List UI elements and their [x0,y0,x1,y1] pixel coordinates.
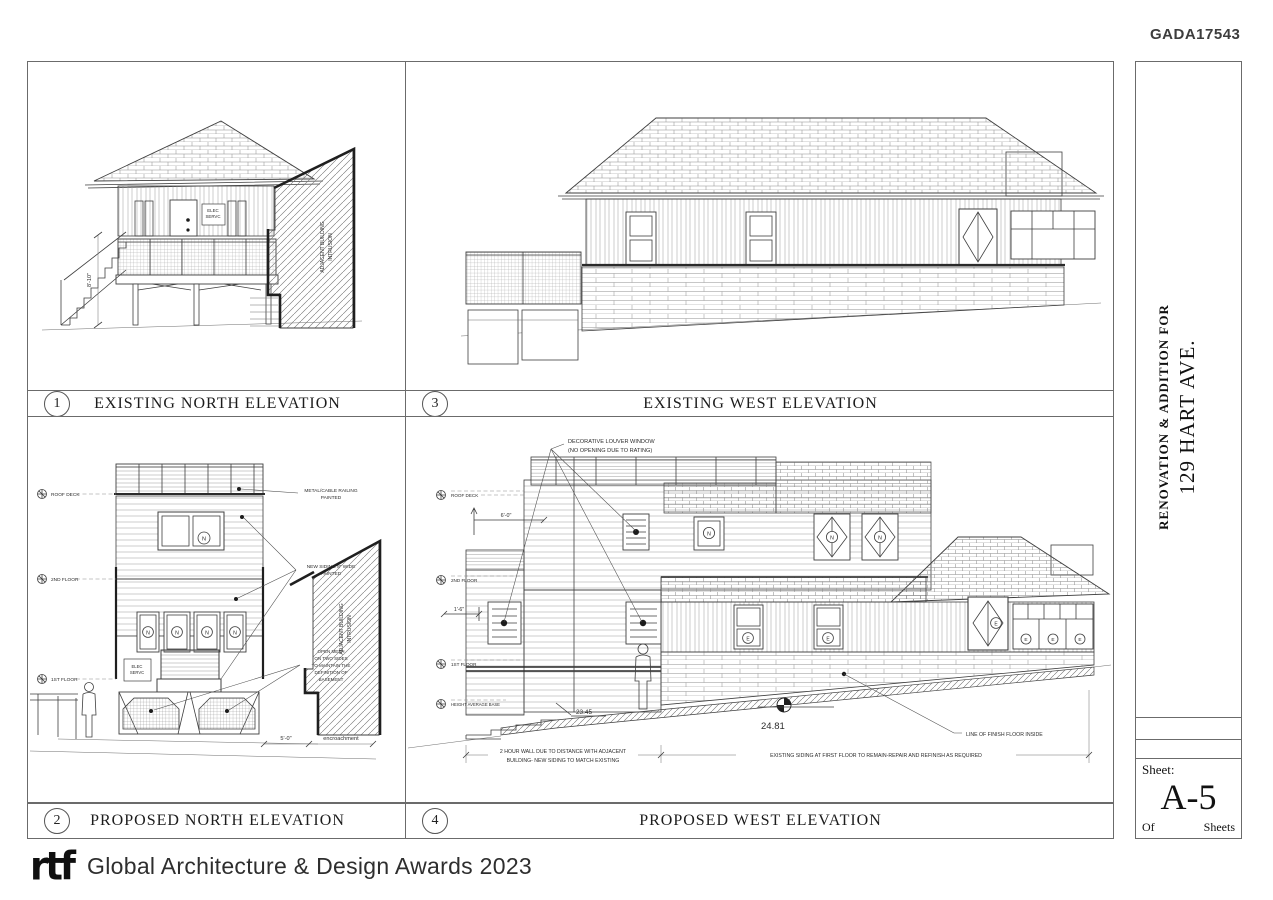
svg-text:(NO OPENING DUE TO RATING): (NO OPENING DUE TO RATING) [568,448,652,454]
svg-text:ADJACENT BUILDING: ADJACENT BUILDING [320,221,326,272]
svg-text:E: E [1051,637,1054,643]
svg-text:ROOF DECK: ROOF DECK [51,492,80,498]
level-marker-icon [437,700,446,709]
drawing-sheet: GADA17543 ELEC SERVC [0,0,1273,900]
project-code: GADA17543 [1150,26,1240,43]
sash-window [746,212,776,265]
award-text: Global Architecture & Design Awards 2023 [87,853,532,880]
svg-text:N: N [878,535,882,541]
entry-door [170,200,197,236]
svg-text:N: N [175,630,179,636]
panel2-drawing-area: N N N N N ELEC [27,416,406,803]
svg-text:N: N [707,531,711,537]
titleblock-divider [1136,717,1241,718]
window-band [1011,211,1095,259]
human-figure [82,683,96,738]
panel2-number-bubble: 2 [44,808,70,834]
svg-text:DECORATIVE LOUVER WINDOW: DECORATIVE LOUVER WINDOW [568,439,655,445]
svg-text:2ND FLOOR: 2ND FLOOR [451,578,478,583]
svg-text:E: E [1024,637,1027,643]
sheet-number: A-5 [1136,776,1241,818]
svg-text:ADJACENT BUILDING: ADJACENT BUILDING [339,603,345,654]
project-title: RENOVATION & ADDITION FOR 129 HART AVE. [1156,207,1222,627]
level-marker-icon [437,576,446,585]
new-window: N [164,612,190,652]
of-label: Of [1142,820,1155,835]
finish-floor-note: LINE OF FINISH FLOOR INSIDE [966,732,1043,738]
panel4-drawing-area: N N N [405,416,1114,803]
basement-mesh-gate [199,698,255,729]
rtf-logo: rtf [30,847,73,886]
svg-text:SERVC: SERVC [205,214,220,219]
sheets-label: Sheets [1204,820,1235,835]
svg-text:INTRUSION: INTRUSION [328,233,334,261]
level-marker-icon [437,491,446,500]
basement-mesh-gate [123,698,179,729]
existing-siding-note: EXISTING SIDING AT FIRST FLOOR TO REMAIN… [770,753,982,759]
new-window: N [137,612,159,652]
existing-diamond-door: E [968,597,1008,650]
existing-window-band: E E E [1013,604,1093,649]
sash-window [626,212,656,265]
svg-text:N: N [146,630,150,636]
spot-elevation-low: 23.45 [576,709,592,716]
proposed-west-elevation-drawing: N N N [406,417,1113,802]
panel3-drawing-area [405,61,1114,391]
svg-text:ELEC: ELEC [132,664,143,669]
panel4-title-band: 4 PROPOSED WEST ELEVATION [405,803,1114,839]
level-marker-icon [38,675,47,684]
existing-window: E [814,605,843,649]
louver-window [626,602,661,644]
roof-deck-railing [116,464,263,494]
new-window: N [194,612,220,652]
two-hour-wall-note: 2 HOUR WALL DUE TO DISTANCE WITH ADJACEN… [500,749,627,755]
svg-text:2ND FLOOR: 2ND FLOOR [51,577,79,583]
deck-railing [118,239,276,275]
panel1-title: EXISTING NORTH ELEVATION [70,395,365,413]
proposed-north-elevation-drawing: N N N N N ELEC [28,417,405,802]
panel4-number-bubble: 4 [422,808,448,834]
panel1-title-band: 1 EXISTING NORTH ELEVATION [27,390,406,417]
panel3-number-bubble: 3 [422,391,448,417]
new-diamond-window: N [862,514,898,560]
svg-text:ROOF DECK: ROOF DECK [451,493,479,498]
title-block: RENOVATION & ADDITION FOR 129 HART AVE. … [1135,61,1242,839]
new-window: N [224,612,246,652]
level-marker-icon [437,660,446,669]
svg-text:PAINTED: PAINTED [321,495,342,501]
panel1-number-bubble: 1 [44,391,70,417]
new-window: N [158,512,224,550]
new-window: N [694,517,724,550]
svg-text:1ST FLOOR: 1ST FLOOR [451,662,477,667]
spot-elevation-high: 24.81 [761,721,785,732]
side-deck [466,252,581,364]
panel2-title-band: 2 PROPOSED NORTH ELEVATION [27,803,406,839]
louver-window [488,602,521,644]
panel3-title: EXISTING WEST ELEVATION [448,395,1073,413]
svg-text:N: N [205,630,209,636]
panel3-title-band: 3 EXISTING WEST ELEVATION [405,390,1114,417]
panel4-title: PROPOSED WEST ELEVATION [448,812,1073,830]
panel2-title: PROPOSED NORTH ELEVATION [70,812,365,830]
existing-window: E [734,605,763,649]
footer: rtf Global Architecture & Design Awards … [30,848,532,885]
existing-west-elevation-drawing [406,62,1113,390]
titleblock-divider [1136,739,1241,740]
level-marker-icon [38,490,47,499]
svg-text:N: N [202,536,206,542]
louver-window [623,514,649,550]
new-diamond-window: N [814,514,850,560]
svg-text:N: N [830,535,834,541]
svg-text:E: E [1078,637,1081,643]
sheet-cell: Sheet: A-5 Of Sheets [1136,758,1241,839]
svg-text:BUILDING- NEW SIDING TO MATCH: BUILDING- NEW SIDING TO MATCH EXISTING [507,758,620,764]
svg-text:N: N [233,630,237,636]
svg-text:INTRUSION: INTRUSION [347,615,353,643]
setback-dimension: 6'-0" [501,513,512,519]
height-dimension: 8'-10" [87,273,93,287]
diamond-door [959,209,997,265]
svg-text:HEIGHT AVERAGE BASE: HEIGHT AVERAGE BASE [451,702,500,707]
svg-text:SERVC: SERVC [130,670,144,675]
existing-north-elevation-drawing: ELEC SERVC 8'-10" ADJACENT B [28,62,405,390]
svg-text:ELEC: ELEC [207,208,218,213]
level-marker-icon [38,575,47,584]
panel1-drawing-area: ELEC SERVC 8'-10" ADJACENT B [27,61,406,391]
svg-text:METAL/CABLE RAILING: METAL/CABLE RAILING [304,488,357,494]
svg-text:1'-6": 1'-6" [454,607,464,613]
svg-text:1ST FLOOR: 1ST FLOOR [51,677,78,683]
encroachment-label: encroachment [323,736,359,742]
width-dimension: 5'-0" [280,736,291,742]
